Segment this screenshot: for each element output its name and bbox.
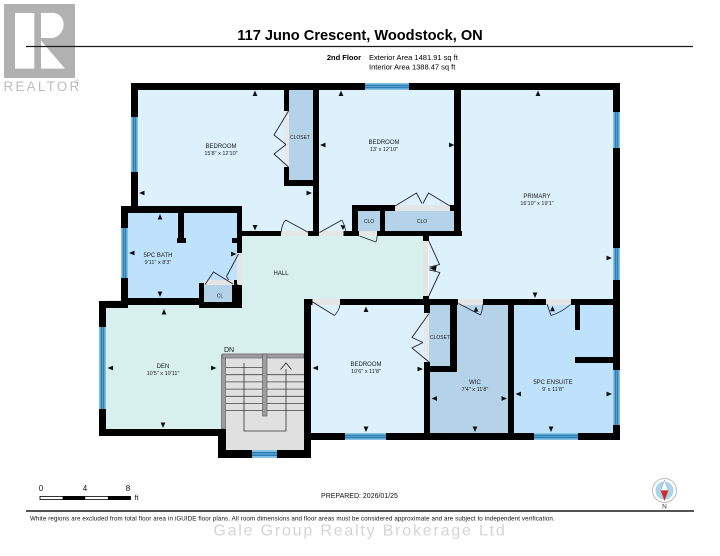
svg-text:DEN: DEN (157, 364, 170, 370)
svg-text:White regions are excluded fro: White regions are excluded from total fl… (30, 516, 555, 523)
svg-text:2nd Floor: 2nd Floor (327, 53, 361, 62)
svg-text:®: ® (75, 78, 80, 86)
svg-text:4: 4 (83, 484, 88, 493)
svg-text:CLO: CLO (417, 219, 427, 225)
svg-text:7'4" x 11'8": 7'4" x 11'8" (462, 387, 489, 393)
svg-text:5PC BATH: 5PC BATH (144, 253, 173, 259)
svg-text:13' x 12'10": 13' x 12'10" (370, 147, 398, 153)
svg-text:CLO: CLO (364, 219, 374, 225)
svg-text:CLOSET: CLOSET (430, 335, 450, 341)
svg-text:REALTOR: REALTOR (4, 79, 82, 94)
svg-text:Interior Area 1388.47 sq ft: Interior Area 1388.47 sq ft (369, 63, 456, 72)
svg-text:5PC ENSUITE: 5PC ENSUITE (533, 380, 572, 386)
svg-text:BEDROOM: BEDROOM (350, 362, 381, 368)
svg-text:N: N (662, 504, 667, 511)
svg-text:Exterior Area 1481.91 sq ft: Exterior Area 1481.91 sq ft (369, 53, 459, 62)
svg-text:16'10" x 19'1": 16'10" x 19'1" (520, 201, 553, 207)
svg-text:DN: DN (224, 347, 234, 354)
svg-text:10'5" x 10'11": 10'5" x 10'11" (147, 371, 180, 377)
svg-text:8: 8 (126, 484, 131, 493)
svg-text:WIC: WIC (469, 380, 481, 386)
svg-text:10'6" x 11'8": 10'6" x 11'8" (351, 369, 381, 375)
svg-text:BEDROOM: BEDROOM (368, 140, 399, 146)
svg-text:BEDROOM: BEDROOM (205, 144, 236, 150)
svg-text:117 Juno Crescent, Woodstock,: 117 Juno Crescent, Woodstock, ON (237, 28, 482, 44)
svg-text:CLOSET: CLOSET (290, 135, 310, 141)
svg-text:0: 0 (39, 484, 44, 493)
svg-text:ft: ft (135, 495, 139, 502)
svg-text:PREPARED: 2026/01/25: PREPARED: 2026/01/25 (321, 493, 398, 500)
svg-text:HALL: HALL (273, 271, 289, 277)
svg-text:15'8" x 12'10": 15'8" x 12'10" (204, 151, 237, 157)
svg-text:9' x 11'8": 9' x 11'8" (542, 387, 564, 393)
svg-text:CL: CL (217, 294, 224, 300)
svg-text:9'11" x 8'3": 9'11" x 8'3" (145, 260, 172, 266)
svg-text:Gale Group Realty Brokerage Lt: Gale Group Realty Brokerage Ltd (213, 523, 506, 540)
svg-text:PRIMARY: PRIMARY (523, 194, 550, 200)
